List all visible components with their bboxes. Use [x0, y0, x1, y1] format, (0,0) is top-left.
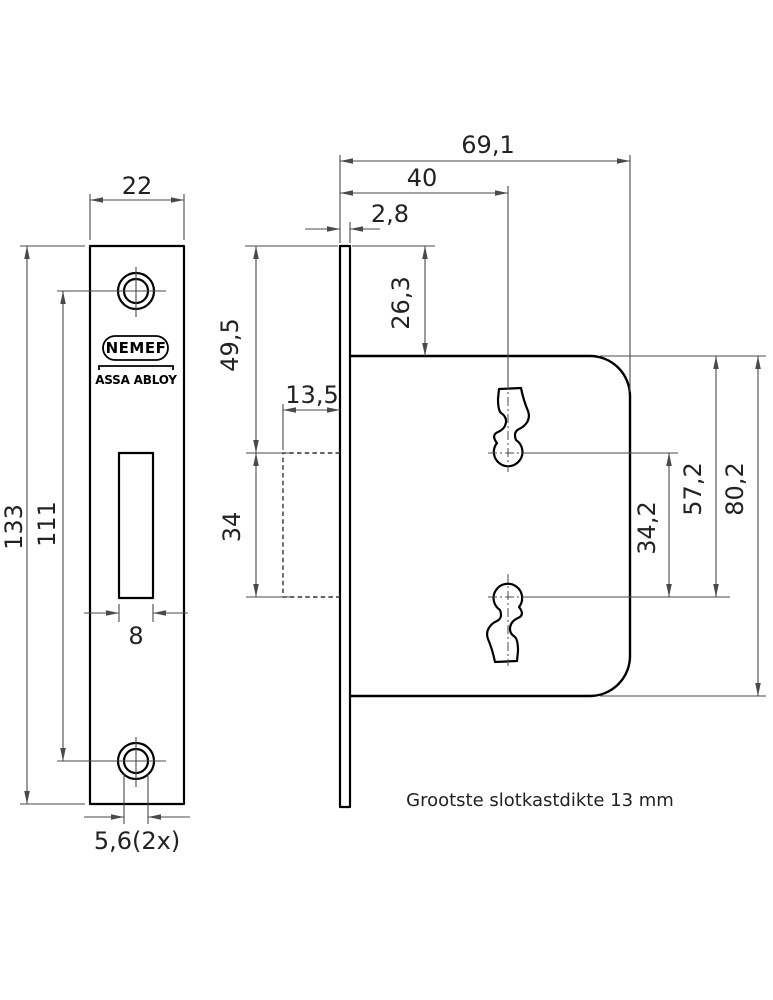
dim-label-backset: 40: [407, 164, 438, 192]
faceplate-outline: [90, 246, 184, 804]
faceplate-edge: [340, 246, 350, 807]
dim-label-plate-height: 133: [0, 504, 28, 550]
top-screw-hole: [112, 267, 166, 317]
dim-label-keyhole-spacing: 34,2: [633, 501, 661, 554]
note-text: Grootste slotkastdikte 13 mm: [406, 790, 674, 811]
brand-underline: [99, 366, 173, 370]
side-view: [283, 246, 630, 807]
bolt-slot: [119, 453, 153, 598]
dimension-plate-width: 22: [90, 172, 184, 200]
dimension-slot-height: 34: [218, 453, 256, 597]
dim-label-screw-hole: 5,6(2x): [94, 827, 180, 855]
front-view: NEMEF ASSA ABLOY: [90, 246, 184, 804]
dimension-case-height: 80,2: [721, 356, 758, 696]
dimension-plate-thickness: 2,8: [305, 200, 409, 229]
upper-keyhole: [494, 388, 529, 466]
lock-technical-drawing: NEMEF ASSA ABLOY: [0, 0, 773, 1000]
dimension-case-to-lower-keyhole: 57,2: [679, 356, 716, 597]
dim-label-plate-width: 22: [122, 172, 153, 200]
hidden-slot-outline: [283, 453, 340, 597]
dimension-top-to-case: 26,3: [387, 246, 425, 356]
dimension-backset: 40: [340, 164, 508, 193]
dimension-bolt-slot-width: 8: [84, 613, 188, 650]
dim-label-slot-height: 34: [218, 512, 246, 543]
dim-label-plate-thickness: 2,8: [371, 200, 409, 228]
extension-lines: [20, 155, 766, 824]
dimension-case-depth: 69,1: [340, 131, 630, 161]
dimension-plate-height: 133: [0, 246, 28, 804]
brand-logo: NEMEF ASSA ABLOY: [95, 336, 177, 387]
brand-name: NEMEF: [106, 339, 167, 357]
dimension-top-to-slot: 49,5: [216, 246, 256, 453]
dimension-screw-spacing: 111: [33, 291, 63, 761]
dim-label-slot-depth: 13,5: [285, 381, 338, 409]
dim-label-top-to-slot: 49,5: [216, 318, 244, 371]
dim-label-case-height: 80,2: [721, 462, 749, 515]
dimension-screw-hole: 5,6(2x): [84, 817, 190, 855]
dim-label-case-to-lower-keyhole: 57,2: [679, 462, 707, 515]
dimension-keyhole-spacing: 34,2: [633, 453, 669, 597]
dim-label-bolt-slot-width: 8: [128, 622, 143, 650]
dim-label-screw-spacing: 111: [33, 501, 61, 547]
brand-group: ASSA ABLOY: [95, 373, 177, 387]
dimension-slot-depth: 13,5: [283, 381, 340, 410]
dim-label-case-depth: 69,1: [461, 131, 514, 159]
technical-drawing-page: NEMEF ASSA ABLOY: [0, 0, 773, 1000]
lower-keyhole: [487, 584, 522, 662]
dim-label-top-to-case: 26,3: [387, 276, 415, 329]
bottom-screw-hole: [112, 737, 166, 787]
